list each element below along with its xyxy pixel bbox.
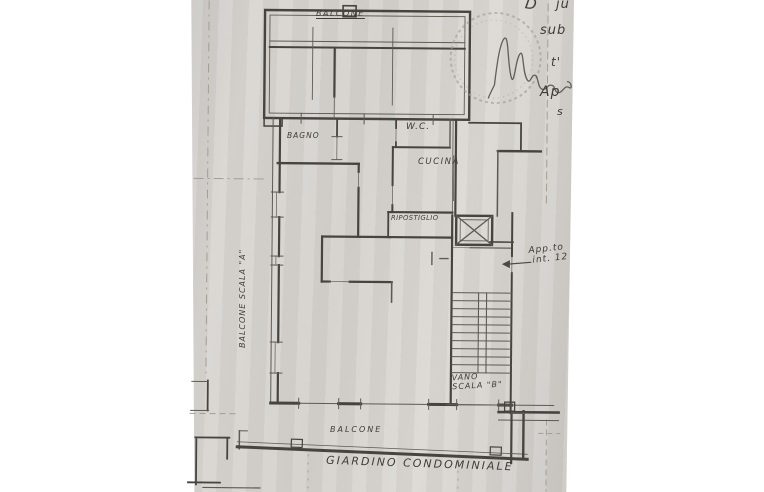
fragment-1: ju: [556, 0, 570, 13]
area-label-vano-scala-b: VANO SCALA "B": [452, 371, 503, 392]
elevator-shaft: [456, 216, 492, 245]
bottom-balcony: [237, 409, 527, 460]
fragment-2: sub: [540, 24, 566, 39]
guide-lines: [189, 0, 564, 492]
room-label-wc: W.C.: [406, 122, 430, 132]
room-label-bagno: BAGNO: [287, 132, 320, 141]
room-label-balcone-bottom: BALCONE: [330, 425, 382, 434]
floor-plan-drawing: [0, 0, 764, 492]
annotation-apartment-ref: App.to int. 12: [528, 242, 569, 267]
area-label-scala-a: BALCONE SCALA "A": [238, 249, 247, 348]
interior-walls: [277, 118, 455, 303]
fragment-3: t': [551, 56, 561, 70]
scanned-floor-plan-photo: BALCONE BAGNO W.C. CUCINA RIPOSTIGLIO BA…: [0, 0, 764, 492]
stamp-circle-icon: [450, 13, 541, 104]
stair-elevator-block: [452, 123, 542, 414]
top-balcony-block: [264, 5, 470, 128]
fragment-0: D: [524, 0, 539, 14]
room-label-cucina: CUCINA: [418, 158, 460, 168]
fragment-4: Ap: [540, 84, 560, 100]
room-label-balcone-top: BALCONE: [316, 9, 365, 18]
fragment-5: s: [557, 106, 564, 119]
bottom-right-walls: [446, 402, 559, 464]
room-label-ripostiglio: RIPOSTIGLIO: [391, 215, 438, 223]
door-arrow: [502, 260, 531, 268]
staircase: [452, 293, 512, 374]
neighbor-walls: [188, 380, 261, 488]
